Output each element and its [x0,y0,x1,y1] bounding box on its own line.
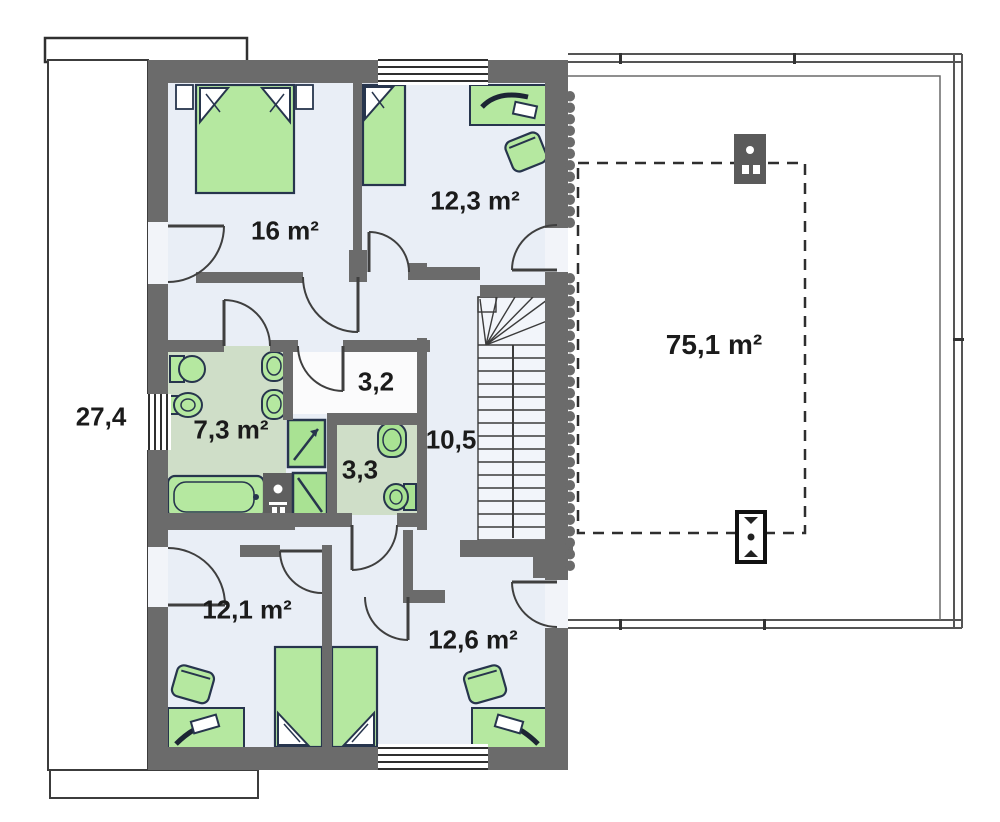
toilet-icon [170,356,205,382]
shower-icon [288,420,325,467]
desk-icon [470,85,548,125]
desk-icon [472,708,546,748]
floor-plan-drawing [0,0,1000,822]
desk-icon [168,708,244,748]
floor-plan: 16 m² 12,3 m² 27,4 3,2 7,3 m² 3,3 10,5 1… [0,0,1000,822]
room-label-hallway: 10,5 [426,425,477,456]
roof-edge-top-left [45,38,247,62]
sink-icon [262,352,286,381]
roof-edge-bottom-left [50,770,258,798]
shower-icon [293,473,327,517]
room-label-closet: 3,2 [358,367,394,398]
terrace [568,53,964,630]
sink-icon [378,423,406,457]
room-label-terrace: 75,1 m² [666,329,763,361]
window-bottom [378,744,488,772]
washer-icon [263,473,293,517]
bed-icon [275,647,322,747]
room-label-wc: 3,3 [342,455,378,486]
room-label-bedroom-bottom-left: 12,1 m² [202,595,292,626]
vent-icon [737,512,765,562]
single-bed-icon [363,85,405,185]
bed-icon [332,647,377,747]
chimney-icon [734,134,766,184]
staircase [478,297,547,540]
room-label-balcony: 27,4 [76,402,127,433]
bathtub-icon [168,476,264,518]
bidet-icon [170,393,202,417]
toilet-icon [384,484,416,510]
closet-floor [293,352,419,414]
room-label-bedroom-bottom-right: 12,6 m² [428,625,518,656]
room-label-bedroom-top-left: 16 m² [251,216,319,247]
window-top [378,57,488,85]
room-label-bedroom-top-right: 12,3 m² [430,186,520,217]
window-left-bathroom [145,394,171,450]
double-bed-icon [176,85,313,193]
room-label-bathroom: 7,3 m² [193,415,268,446]
